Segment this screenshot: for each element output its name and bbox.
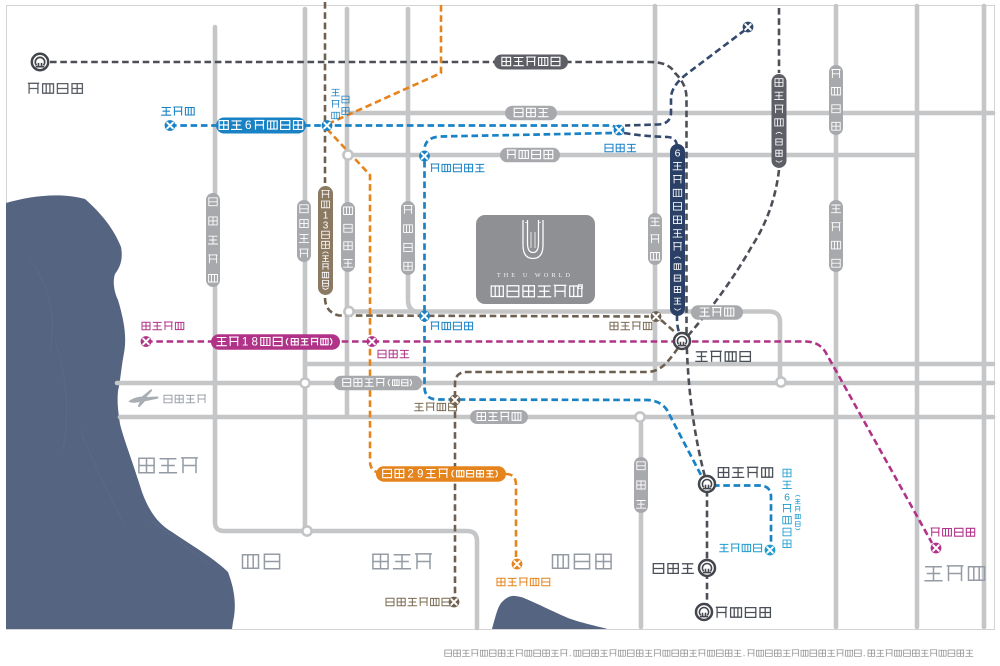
svg-text:6: 6	[245, 118, 252, 132]
svg-text:6: 6	[784, 492, 790, 504]
svg-text:6: 6	[675, 148, 681, 160]
svg-text:8: 8	[251, 335, 257, 348]
svg-text:1: 1	[242, 335, 248, 348]
svg-text:9: 9	[417, 467, 423, 480]
svg-text:3: 3	[323, 221, 329, 232]
svg-text:THE U WORLD: THE U WORLD	[497, 272, 573, 279]
svg-text:2: 2	[407, 467, 413, 480]
